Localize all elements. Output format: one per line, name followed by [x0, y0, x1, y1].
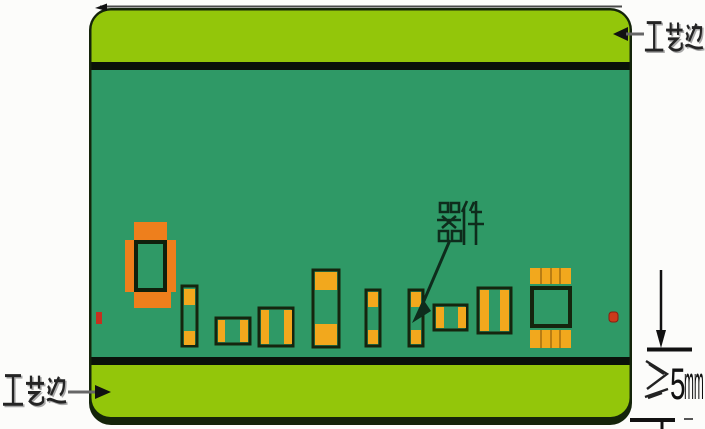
svg-text:mm: mm	[684, 358, 704, 410]
